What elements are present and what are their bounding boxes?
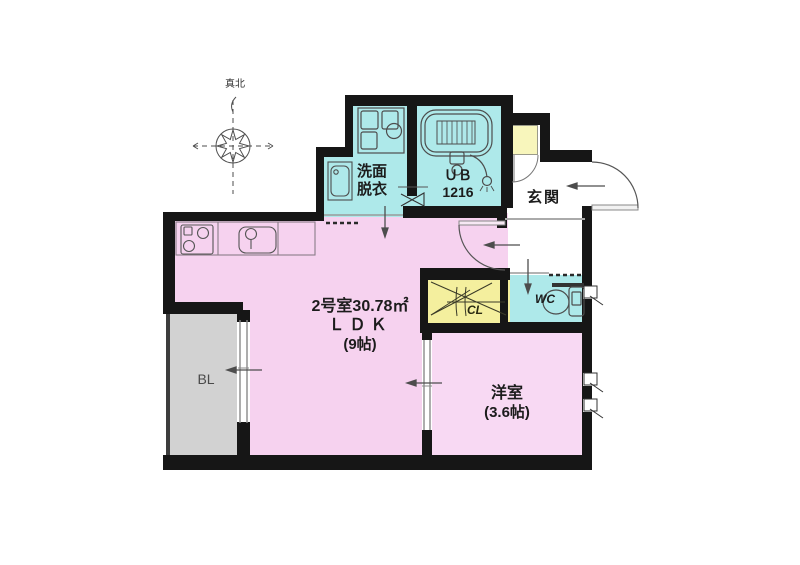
entrance-label: 玄関	[516, 189, 572, 207]
wall	[420, 268, 510, 280]
wall	[510, 113, 542, 125]
wall	[500, 322, 592, 333]
wall	[497, 206, 507, 228]
floor-plan: 真北 洗面 脱衣 ＵＢ 1216 玄関 2号室30.78㎡ ＬＤＫ (9帖) C…	[0, 0, 800, 565]
wall	[582, 206, 592, 470]
wall	[422, 430, 432, 457]
wall	[163, 302, 243, 314]
wall	[237, 310, 250, 322]
ldk-label: 2号室30.78㎡ ＬＤＫ (9帖)	[278, 298, 442, 353]
wall	[414, 206, 505, 218]
wall	[345, 95, 513, 106]
wall	[163, 212, 324, 221]
washroom-label: 洗面 脱衣	[343, 163, 401, 198]
window-gap-wc	[583, 287, 592, 299]
wall	[237, 422, 250, 457]
wall	[407, 95, 417, 196]
shoe-cabinet-door-icon	[512, 155, 538, 182]
wall	[163, 212, 175, 307]
unit-bath-label: ＵＢ 1216	[430, 167, 486, 200]
closet-label: CL	[460, 303, 490, 317]
wall	[163, 455, 592, 470]
sliding-door-gap-western	[422, 340, 432, 430]
wc-label: WC	[530, 292, 560, 306]
window-gap-western-1	[583, 373, 592, 386]
compass-label: 真北	[215, 79, 255, 91]
room-washroom-upper	[351, 104, 407, 160]
entrance-door-icon	[592, 162, 638, 210]
western-room-label: 洋室 (3.6帖)	[452, 385, 562, 422]
wall	[540, 150, 592, 162]
balcony-edge	[166, 314, 170, 455]
wall	[501, 95, 513, 208]
window-gap-western-2	[583, 399, 592, 412]
compass-icon	[193, 97, 273, 194]
wall	[316, 147, 324, 217]
balcony-label: BL	[186, 371, 226, 388]
window-gap-balcony	[237, 322, 250, 422]
shoe-cabinet	[512, 125, 538, 155]
